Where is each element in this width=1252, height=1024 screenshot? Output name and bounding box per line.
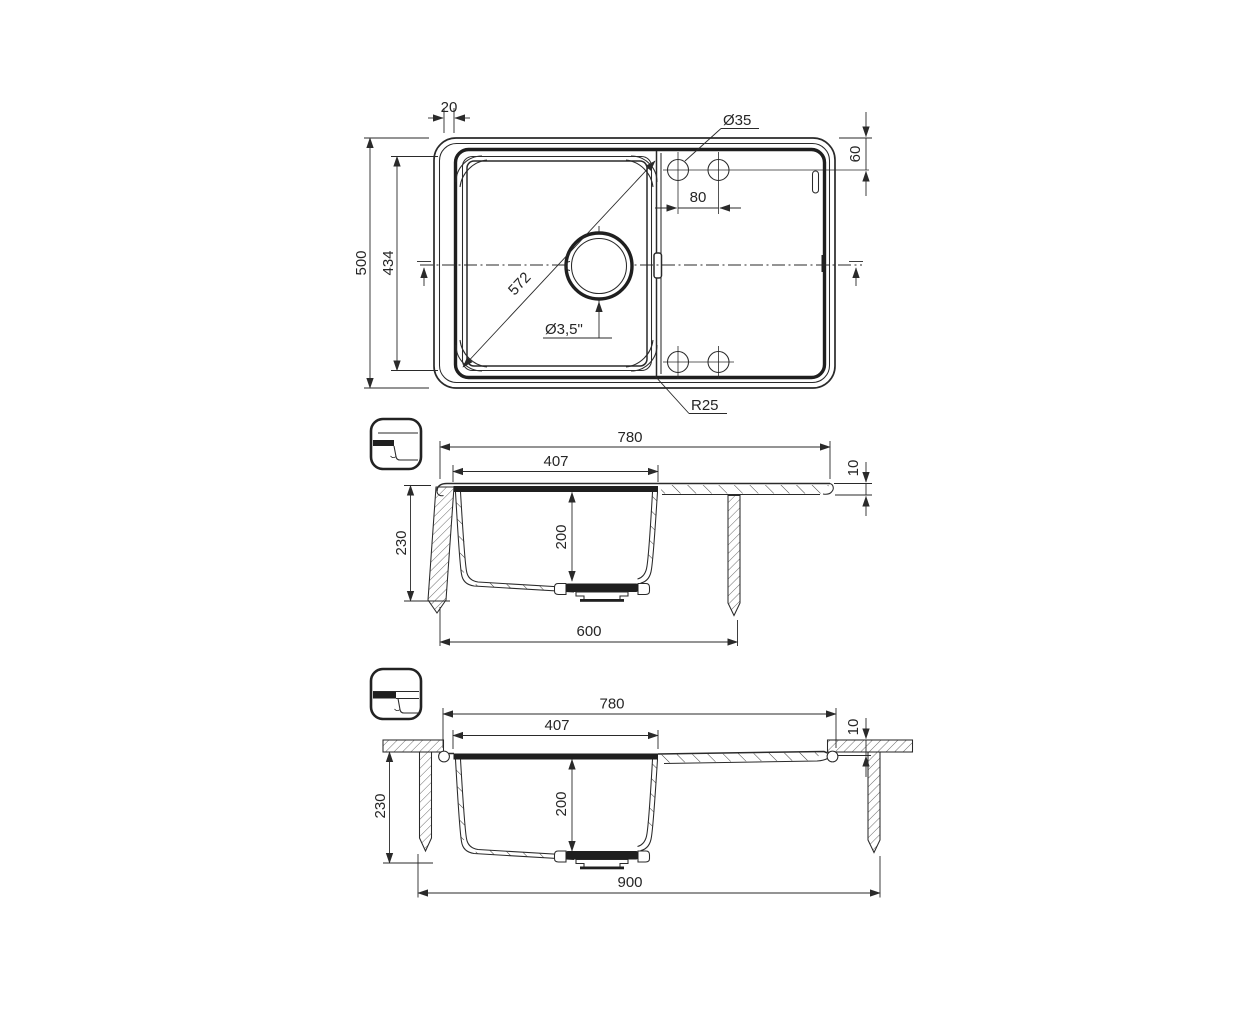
dim-bowl-inner-depth: 200 (553, 524, 570, 549)
cabinet-wall-left (420, 752, 432, 851)
dim-corner-radius: R25 (691, 397, 719, 414)
dim-faucet-hole-diameter: Ø35 (723, 112, 751, 129)
top-view: 572 500 434 20 Ø35 (353, 99, 872, 414)
drawing-canvas: 572 500 434 20 Ø35 (0, 0, 1252, 1024)
dim-780-group: 780 (443, 696, 836, 749)
dim-overall-width: 780 (599, 696, 624, 713)
sink-outline (434, 138, 835, 388)
dim-bowl-width: 407 (544, 717, 569, 734)
dim-rim-thickness: 10 (845, 719, 862, 736)
dim-total-depth: 230 (372, 793, 389, 818)
dim-rim-width: 20 (441, 99, 458, 116)
dim-cabinet-width: 600 (576, 623, 601, 640)
drain-opening (566, 233, 633, 299)
rim-curl-left (439, 751, 450, 762)
edge-tab (822, 255, 827, 272)
dim-200-group: 200 (553, 493, 572, 582)
dim-overall-depth: 500 (353, 250, 370, 275)
dim-hole-spacing-group: 80 (655, 189, 741, 208)
section-view-flush: 780 407 10 230 200 900 (371, 669, 913, 898)
dim-600-group: 600 (440, 607, 738, 646)
dim-bowl-depth: 434 (380, 250, 397, 275)
dim-cabinet-width: 900 (617, 874, 642, 891)
rim-curl-right (827, 751, 838, 762)
countertop-cut-right (728, 496, 740, 616)
callout-faucet-hole: Ø35 (685, 112, 759, 161)
technical-drawing: 572 500 434 20 Ø35 (0, 0, 1252, 1024)
dim-200-group: 200 (553, 760, 572, 852)
countertop-right (828, 740, 913, 752)
dim-10-group: 10 (834, 460, 872, 516)
divider-tab (654, 253, 662, 278)
countertop-cut-left (428, 487, 454, 613)
dim-drain-size: Ø3,5" (545, 321, 583, 338)
dim-rim-width-group: 20 (428, 99, 470, 133)
countertop-left (383, 740, 444, 752)
cabinet-wall-right (868, 752, 880, 853)
callout-corner-radius: R25 (655, 376, 727, 414)
section-view-inset: 780 407 10 230 200 (371, 419, 872, 646)
dim-rim-thickness: 10 (845, 460, 862, 477)
overflow-slot (813, 171, 819, 193)
dim-407-group: 407 (453, 453, 658, 482)
drainboard-section (660, 485, 829, 494)
faucet-holes (663, 152, 869, 379)
dim-hole-edge-offset: 60 (847, 146, 864, 163)
inset-mount-icon (371, 419, 421, 469)
dim-bowl-diagonal: 572 (505, 269, 535, 299)
dim-overall-width: 780 (617, 429, 642, 446)
dim-407-group: 407 (453, 717, 658, 749)
dim-bowl-inner-depth: 200 (553, 791, 570, 816)
callout-drain: Ø3,5" (543, 302, 612, 338)
dim-bowl-width: 407 (543, 453, 568, 470)
dim-bowl-depth-group: 434 (380, 157, 438, 371)
dim-total-depth: 230 (393, 530, 410, 555)
dim-hole-offset-group: 60 (839, 112, 872, 196)
dim-hole-spacing: 80 (690, 189, 707, 206)
flush-mount-icon (371, 669, 421, 719)
